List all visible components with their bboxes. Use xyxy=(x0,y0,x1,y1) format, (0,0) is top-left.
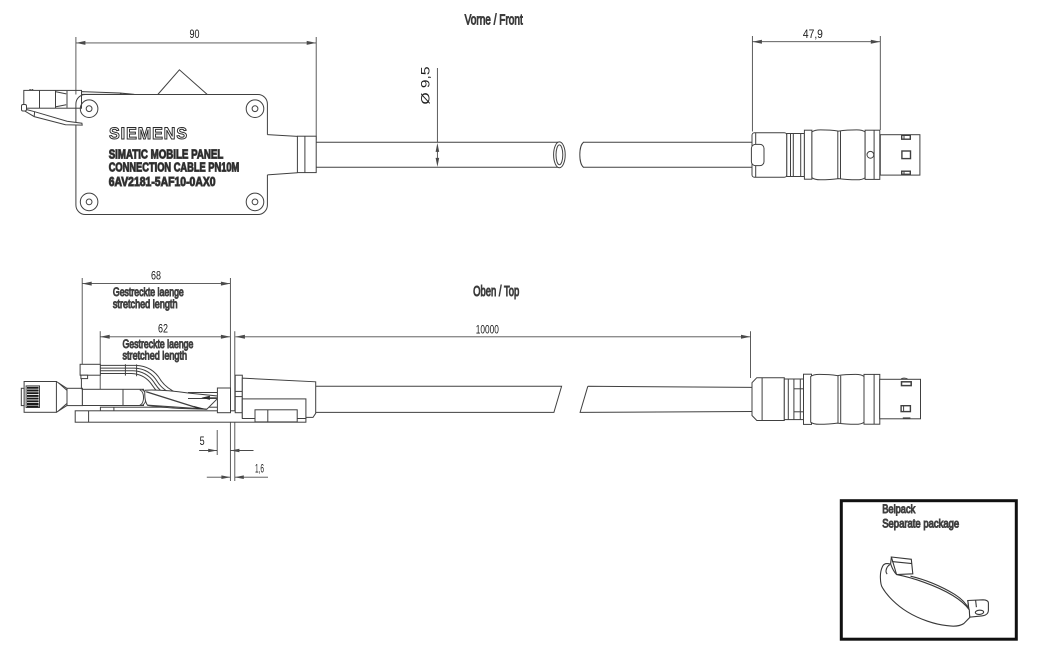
svg-text:Beipack: Beipack xyxy=(882,503,915,516)
svg-text:Separate package: Separate package xyxy=(882,517,959,530)
svg-text:stretched length: stretched length xyxy=(113,298,178,311)
svg-text:68: 68 xyxy=(151,269,161,282)
svg-text:10000: 10000 xyxy=(476,323,499,336)
svg-text:Ø 9,5: Ø 9,5 xyxy=(420,67,433,105)
svg-text:CONNECTION CABLE PN10M: CONNECTION CABLE PN10M xyxy=(109,161,240,175)
svg-text:Vorne / Front: Vorne / Front xyxy=(465,13,523,29)
svg-text:SIMATIC MOBILE PANEL: SIMATIC MOBILE PANEL xyxy=(109,147,224,161)
svg-text:47,9: 47,9 xyxy=(803,28,823,41)
svg-text:stretched length: stretched length xyxy=(123,350,188,363)
svg-text:62: 62 xyxy=(158,322,168,335)
svg-text:SIEMENS: SIEMENS xyxy=(109,124,188,143)
svg-text:6AV2181-5AF10-0AX0: 6AV2181-5AF10-0AX0 xyxy=(109,175,216,189)
svg-text:Oben / Top: Oben / Top xyxy=(473,284,519,300)
svg-text:90: 90 xyxy=(190,28,200,41)
svg-text:5: 5 xyxy=(200,435,205,448)
svg-text:1,6: 1,6 xyxy=(255,462,264,475)
